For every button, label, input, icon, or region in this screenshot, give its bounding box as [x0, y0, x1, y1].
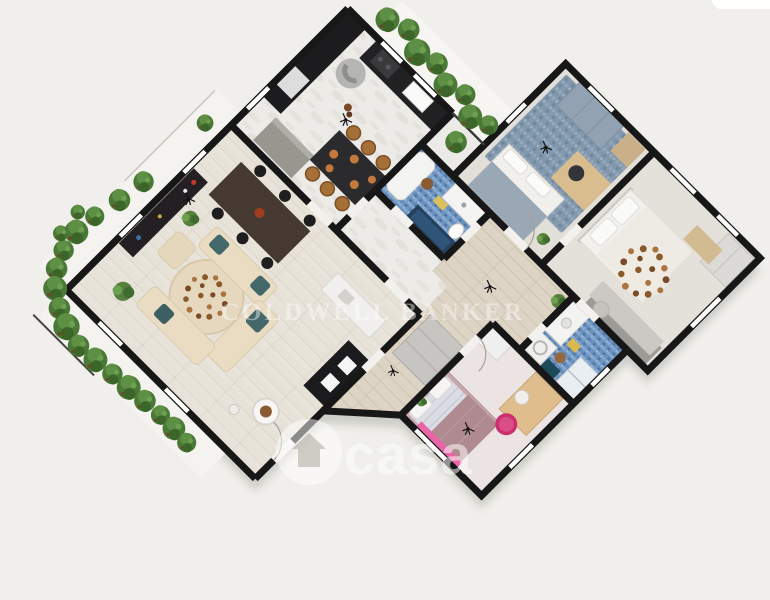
watermark-coldwell-banker: COLDWELL BANKER — [221, 299, 525, 326]
casa-watermark-text: casa — [344, 423, 473, 486]
floorplan-screenshot: COLDWELL BANKER casa — [0, 0, 770, 600]
floorplan-render: COLDWELL BANKER casa — [0, 0, 770, 600]
brand-watermark-text: COLDWELL BANKER — [221, 299, 525, 326]
watermark-casa: casa — [276, 419, 473, 486]
overlay-card-corner — [712, 0, 770, 9]
